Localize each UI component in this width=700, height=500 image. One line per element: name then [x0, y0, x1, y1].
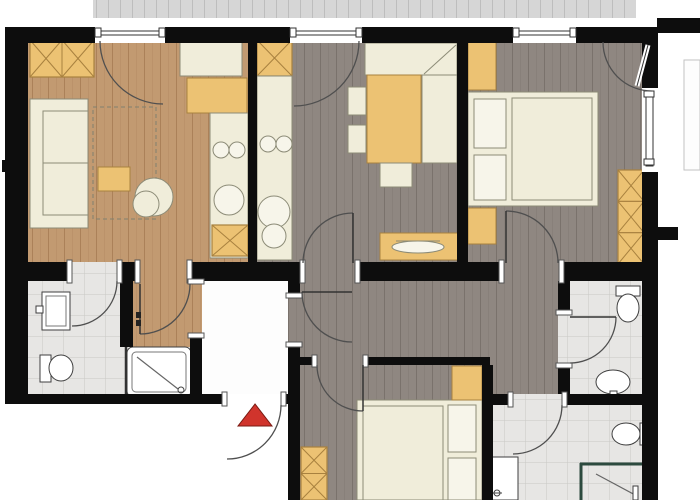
nightstand [468, 208, 496, 244]
shower-tray [127, 347, 191, 397]
kitchen-sink [262, 224, 286, 248]
nightstand [468, 42, 496, 90]
wall [165, 27, 290, 43]
door-jamb [559, 260, 564, 283]
doorway [140, 262, 187, 281]
door-jamb [508, 392, 513, 407]
kitchen-cabinet-block [187, 78, 247, 113]
window-jamb [290, 28, 296, 37]
door-jamb [556, 363, 572, 368]
wall [120, 278, 133, 347]
bed-mattress [512, 98, 592, 200]
round-chair-seat [133, 191, 159, 217]
sink-bowl [276, 136, 292, 152]
wall [482, 365, 493, 500]
window-frame [100, 31, 160, 35]
wall [5, 27, 28, 404]
wall [457, 40, 468, 262]
door-hinge [136, 312, 141, 318]
window-frame [518, 31, 571, 35]
hall-cabinet [180, 42, 242, 76]
wall [362, 27, 513, 43]
wall [355, 262, 504, 281]
wall [248, 40, 257, 262]
wall [559, 262, 642, 281]
doorway [317, 357, 363, 365]
wall [2, 160, 8, 172]
toilet-bowl [617, 294, 639, 322]
faucet [36, 306, 43, 313]
dining-chair [380, 163, 412, 187]
bed-pillow [474, 155, 506, 200]
window-frame [295, 31, 357, 35]
door-jamb [355, 260, 360, 283]
coffee-table [98, 167, 130, 191]
hob-burner [229, 142, 245, 158]
door-jamb [499, 260, 504, 283]
window-jamb [159, 28, 165, 37]
door-jamb [188, 279, 204, 284]
door-jamb [188, 333, 204, 338]
balcony-floor [93, 0, 636, 18]
door-jamb [286, 342, 302, 347]
window-jamb [570, 28, 576, 37]
dining-table [367, 75, 421, 163]
window-jamb [356, 28, 362, 37]
door-hinge [136, 320, 141, 326]
bed-pillow [474, 99, 506, 148]
hall-floor [490, 359, 558, 394]
corner-bench [365, 43, 457, 75]
exterior-ledge [684, 60, 700, 170]
vestibule-floor [202, 281, 288, 394]
window-jamb [513, 28, 519, 37]
door-jamb [286, 293, 302, 298]
door-jamb [67, 260, 72, 283]
wall [5, 262, 68, 281]
floor-plan-image [0, 0, 700, 500]
bed-mattress [363, 406, 443, 500]
washing-machine [492, 457, 518, 500]
wall [657, 18, 700, 33]
wall [288, 342, 300, 500]
door-jamb [117, 260, 122, 283]
wall [363, 357, 490, 365]
toilet-bowl [49, 355, 73, 381]
door-jamb [281, 392, 286, 406]
door-jamb [222, 392, 227, 406]
radiator-end [644, 159, 654, 165]
floor-plan-svg [0, 0, 700, 500]
doorway [305, 262, 355, 281]
radiator [646, 94, 653, 166]
door-jamb [135, 260, 140, 283]
wall [642, 170, 658, 500]
doorway [288, 298, 300, 342]
doorway [504, 262, 559, 281]
wall [190, 333, 202, 404]
wall [187, 262, 305, 281]
fruit-bowl [392, 241, 444, 253]
door-jamb [556, 310, 572, 315]
wall [562, 394, 642, 405]
nightstand [452, 366, 482, 400]
dining-chair [348, 87, 366, 115]
shower-fixture [633, 486, 638, 500]
radiator-end [644, 91, 654, 97]
hob-burner [213, 142, 229, 158]
wall [658, 227, 678, 240]
dining-chair [348, 125, 366, 153]
door-jamb [562, 392, 567, 407]
window-jamb [95, 28, 101, 37]
toilet-bowl [612, 423, 640, 445]
doorway [558, 315, 570, 363]
bed-pillow [448, 405, 476, 452]
kitchen-sink [214, 185, 244, 215]
washbasin-oval [596, 370, 630, 394]
sink-bowl [260, 136, 276, 152]
door-jamb [300, 260, 305, 283]
corner-bench [422, 75, 457, 163]
kitchen-sink [258, 196, 290, 228]
doorway [513, 394, 562, 405]
bed-pillow [448, 458, 476, 500]
door-jamb [312, 355, 317, 367]
doorway [190, 284, 202, 333]
doorway [72, 262, 117, 281]
